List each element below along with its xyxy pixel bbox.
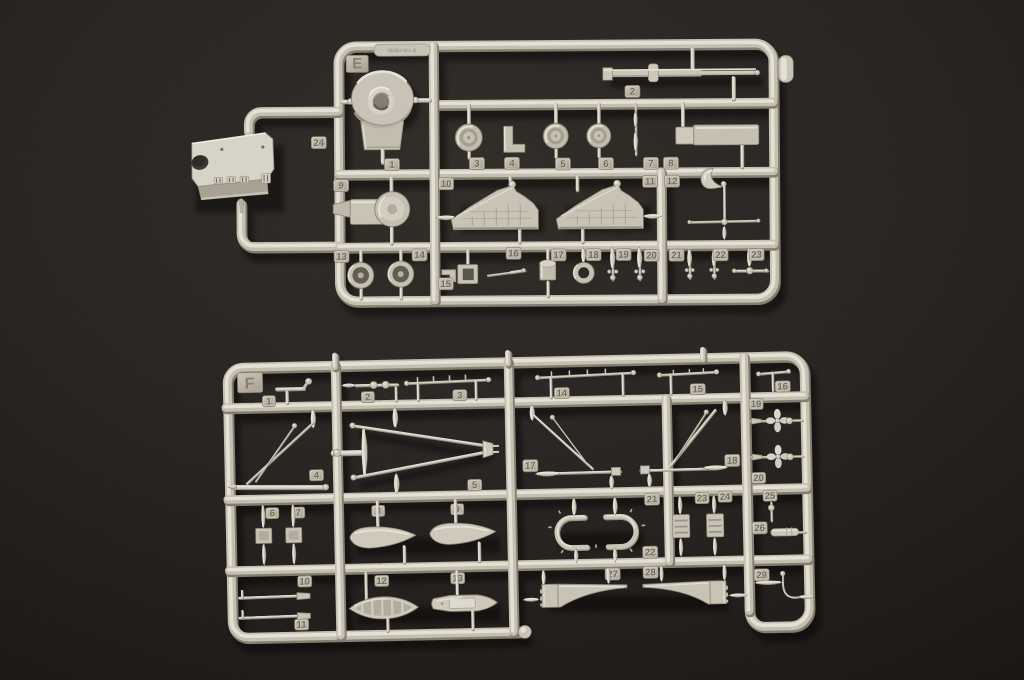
svg-text:12: 12 [376, 576, 387, 587]
svg-text:22: 22 [645, 547, 656, 558]
svg-text:17: 17 [553, 250, 564, 261]
svg-text:24: 24 [720, 492, 732, 503]
svg-text:2: 2 [630, 87, 635, 98]
svg-text:28: 28 [645, 567, 656, 578]
svg-text:22: 22 [715, 250, 726, 261]
svg-text:25: 25 [765, 491, 777, 502]
svg-text:21: 21 [647, 494, 659, 505]
svg-text:16: 16 [777, 382, 788, 393]
svg-text:5: 5 [472, 480, 478, 491]
svg-text:7: 7 [296, 508, 302, 519]
svg-text:14: 14 [414, 250, 425, 261]
svg-text:18: 18 [588, 250, 599, 261]
svg-text:12: 12 [667, 176, 678, 187]
svg-text:6: 6 [270, 508, 276, 519]
svg-text:3: 3 [474, 159, 479, 170]
svg-text:19: 19 [751, 399, 762, 410]
svg-text:15: 15 [440, 279, 451, 290]
svg-text:1: 1 [389, 160, 395, 171]
svg-text:11: 11 [645, 177, 656, 188]
svg-text:F: F [245, 375, 255, 392]
svg-text:19: 19 [618, 250, 629, 261]
svg-text:4: 4 [314, 470, 320, 481]
svg-text:21: 21 [671, 250, 682, 261]
svg-text:24: 24 [313, 138, 324, 149]
svg-text:E: E [352, 55, 362, 72]
svg-text:7: 7 [648, 159, 653, 170]
svg-text:05363 W.L.B: 05363 W.L.B [388, 48, 417, 54]
svg-text:29: 29 [756, 570, 767, 581]
svg-text:20: 20 [646, 250, 657, 261]
svg-text:2: 2 [365, 392, 371, 403]
svg-text:16: 16 [508, 248, 519, 259]
svg-text:17: 17 [525, 461, 536, 472]
svg-text:11: 11 [297, 620, 308, 631]
svg-text:14: 14 [556, 388, 568, 399]
svg-text:20: 20 [753, 473, 764, 484]
svg-text:10: 10 [299, 577, 310, 588]
svg-text:15: 15 [692, 384, 704, 395]
svg-text:23: 23 [751, 250, 762, 261]
svg-text:5: 5 [560, 159, 566, 170]
svg-text:6: 6 [603, 159, 608, 170]
svg-text:18: 18 [727, 456, 738, 467]
svg-text:26: 26 [754, 523, 765, 534]
svg-text:23: 23 [697, 493, 708, 504]
svg-text:4: 4 [509, 158, 515, 169]
svg-text:13: 13 [336, 252, 347, 263]
svg-text:9: 9 [338, 181, 343, 192]
svg-text:3: 3 [457, 390, 463, 401]
svg-text:1: 1 [266, 396, 272, 407]
svg-text:8: 8 [668, 158, 673, 169]
svg-text:10: 10 [441, 179, 452, 190]
